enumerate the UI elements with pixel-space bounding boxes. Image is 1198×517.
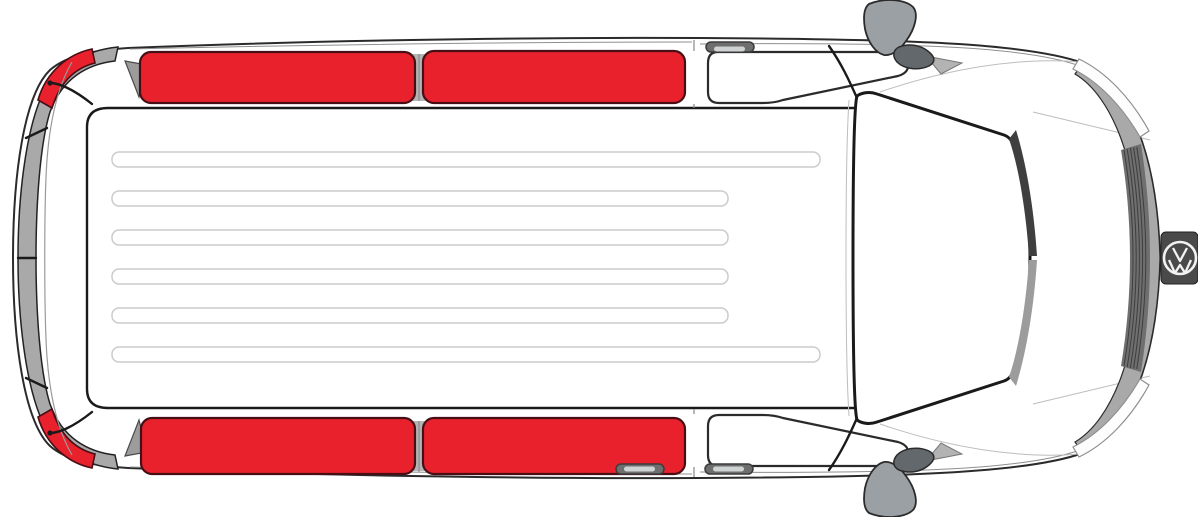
roof-rib bbox=[112, 308, 728, 323]
door-handle-front-left bbox=[706, 42, 754, 52]
side-window-rear-right-highlighted bbox=[141, 418, 415, 474]
windshield bbox=[853, 93, 1030, 424]
roof-rib bbox=[112, 152, 820, 167]
side-window-rear-left-highlighted bbox=[140, 52, 415, 103]
van-diagram-canvas bbox=[0, 0, 1198, 517]
side-window-middle-left-highlighted bbox=[423, 51, 685, 103]
roof-rib bbox=[112, 230, 728, 245]
rear-wiper-pivot-top bbox=[47, 80, 52, 85]
roof-rib bbox=[112, 269, 728, 284]
vehicle-top-view-diagram bbox=[0, 0, 1198, 517]
roof-rib bbox=[112, 347, 820, 362]
rear-wiper-pivot-bottom bbox=[47, 430, 52, 435]
door-handle-sliding-right bbox=[616, 464, 664, 474]
door-handle-front-right bbox=[705, 464, 753, 474]
roof-rib bbox=[112, 191, 728, 206]
vw-badge bbox=[1161, 232, 1198, 284]
